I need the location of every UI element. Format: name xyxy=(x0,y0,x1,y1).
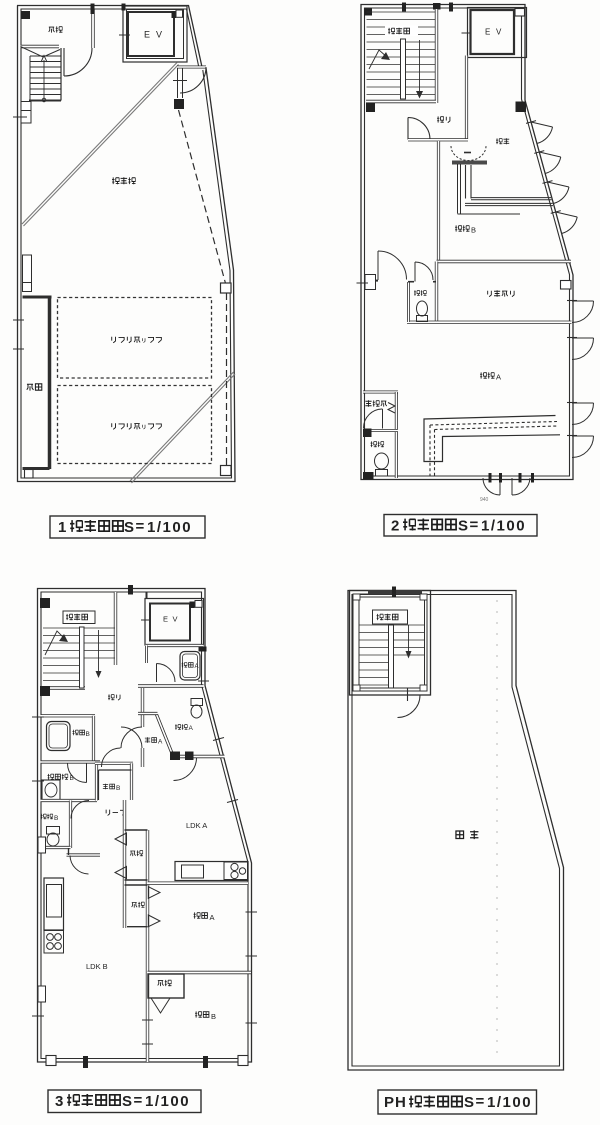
svg-text:940: 940 xyxy=(480,497,489,503)
svg-text:1: 1 xyxy=(58,519,66,536)
svg-text:B: B xyxy=(211,1012,216,1021)
svg-text:S: S xyxy=(458,518,468,535)
svg-text:S: S xyxy=(124,519,134,536)
svg-text:B: B xyxy=(116,785,120,792)
svg-text:H: H xyxy=(395,1094,406,1111)
svg-text:LDK B: LDK B xyxy=(86,962,108,971)
svg-text:LDK A: LDK A xyxy=(186,821,207,830)
svg-text:1/100: 1/100 xyxy=(147,519,192,536)
svg-text:A: A xyxy=(158,739,163,746)
svg-text:B: B xyxy=(54,815,58,822)
svg-text:V: V xyxy=(156,30,162,40)
svg-text:3: 3 xyxy=(55,1093,63,1110)
svg-text:S: S xyxy=(464,1094,474,1111)
svg-text:1/100: 1/100 xyxy=(487,1094,532,1111)
svg-text:2: 2 xyxy=(391,518,399,535)
svg-text:S: S xyxy=(122,1093,132,1110)
svg-text:B: B xyxy=(86,731,90,738)
svg-text:=: = xyxy=(136,518,145,535)
svg-text:E: E xyxy=(144,30,150,40)
svg-text:=: = xyxy=(476,1093,485,1110)
svg-text:A: A xyxy=(195,664,199,670)
svg-text:A: A xyxy=(496,373,501,382)
svg-text:P: P xyxy=(384,1094,394,1111)
svg-text:V: V xyxy=(496,28,502,37)
svg-text:1/100: 1/100 xyxy=(481,518,526,535)
svg-text:1/100: 1/100 xyxy=(145,1093,190,1110)
svg-text:V: V xyxy=(173,615,178,624)
svg-text:A: A xyxy=(210,913,215,922)
svg-text:B: B xyxy=(70,775,74,782)
svg-text:=: = xyxy=(470,517,479,534)
svg-text:E: E xyxy=(485,28,490,37)
svg-text:E: E xyxy=(163,615,168,624)
svg-text:A: A xyxy=(189,725,194,732)
svg-text:B: B xyxy=(471,226,476,235)
svg-text:=: = xyxy=(134,1092,143,1109)
